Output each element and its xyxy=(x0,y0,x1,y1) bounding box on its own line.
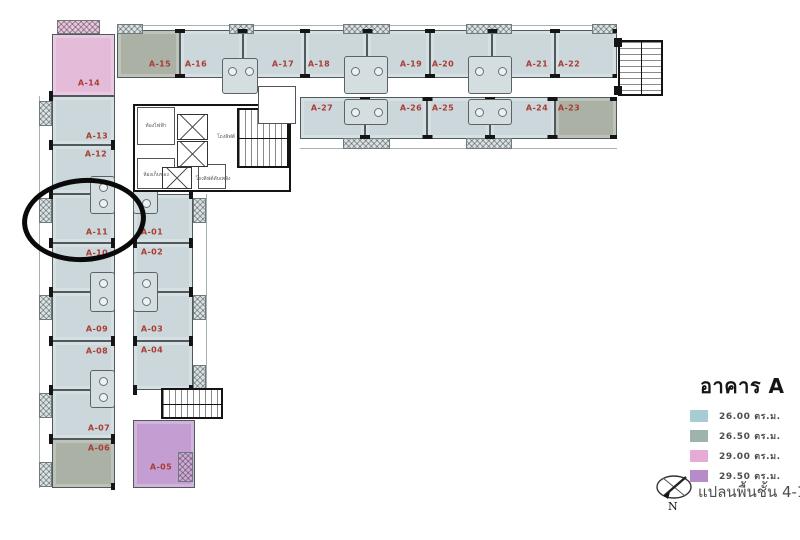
bathroom-pod xyxy=(133,272,158,312)
unit-a-15 xyxy=(117,30,180,78)
railing-line xyxy=(39,96,40,488)
unit-label-a-20: A-20 xyxy=(432,60,454,69)
unit-label-a-15: A-15 xyxy=(149,60,171,69)
unit-label-a-02: A-02 xyxy=(141,248,163,257)
balcony-hatch xyxy=(193,198,206,223)
unit-label-a-26: A-26 xyxy=(400,104,422,113)
bathroom-pod xyxy=(344,56,388,94)
core-room-label: โถงลิฟต์ดับเพลิง xyxy=(196,177,231,183)
legend-swatch xyxy=(690,410,708,422)
bathroom-pod xyxy=(90,370,115,408)
unit-label-a-23: A-23 xyxy=(558,104,580,113)
balcony-hatch xyxy=(343,138,390,149)
legend-rows: 26.00 ตร.ม.26.50 ตร.ม.29.00 ตร.ม.29.50 ต… xyxy=(690,409,785,483)
bathroom-pod xyxy=(468,56,512,94)
window-dashes xyxy=(175,29,617,33)
railing-line xyxy=(206,194,207,390)
compass-icon: N xyxy=(653,472,695,520)
elevator-shaft xyxy=(177,114,208,140)
legend-title: อาคาร A xyxy=(700,370,785,402)
legend-label: 26.00 ตร.ม. xyxy=(719,409,781,423)
elevator-shaft xyxy=(177,141,208,167)
units-layer: A-15A-16A-17A-18A-19A-20A-21A-22A-27A-26… xyxy=(0,0,800,540)
unit-a-22 xyxy=(555,30,617,78)
legend-label: 29.00 ตร.ม. xyxy=(719,449,781,463)
unit-label-a-03: A-03 xyxy=(141,325,163,334)
legend-item-26.00: 26.00 ตร.ม. xyxy=(690,409,785,423)
balcony-hatch xyxy=(178,452,193,482)
floor-plan-diagram: A-15A-16A-17A-18A-19A-20A-21A-22A-27A-26… xyxy=(0,0,800,540)
core-room-label: ห้องไฟฟ้า xyxy=(145,124,166,130)
legend-item-29.00: 29.00 ตร.ม. xyxy=(690,449,785,463)
unit-label-a-05: A-05 xyxy=(150,463,172,472)
bathroom-pod xyxy=(344,99,388,125)
unit-label-a-24: A-24 xyxy=(526,104,548,113)
unit-label-a-21: A-21 xyxy=(526,60,548,69)
balcony-hatch xyxy=(466,138,512,149)
unit-label-a-18: A-18 xyxy=(308,60,330,69)
balcony-hatch xyxy=(117,24,143,34)
window-dashes xyxy=(360,135,617,139)
legend: อาคาร A 26.00 ตร.ม.26.50 ตร.ม.29.00 ตร.ม… xyxy=(690,370,785,489)
east-stairwell xyxy=(618,40,663,96)
balcony-hatch xyxy=(193,295,206,320)
unit-label-a-22: A-22 xyxy=(558,60,580,69)
stair-door-block xyxy=(614,86,622,95)
balcony-hatch xyxy=(193,365,206,390)
legend-label: 26.50 ตร.ม. xyxy=(719,429,781,443)
unit-label-a-13: A-13 xyxy=(86,132,108,141)
compass-n-glyph: N xyxy=(668,500,678,513)
junction-room xyxy=(258,86,296,124)
unit-label-a-16: A-16 xyxy=(185,60,207,69)
unit-label-a-08: A-08 xyxy=(86,347,108,356)
window-dashes xyxy=(189,189,193,391)
bathroom-pod xyxy=(468,99,512,125)
unit-label-a-19: A-19 xyxy=(400,60,422,69)
core-room-label: ห้องเก็บของ xyxy=(143,173,169,179)
balcony-hatch xyxy=(39,462,52,487)
unit-label-a-12: A-12 xyxy=(85,150,107,159)
bathroom-pod xyxy=(222,58,258,94)
unit-label-a-07: A-07 xyxy=(88,424,110,433)
unit-label-a-27: A-27 xyxy=(311,104,333,113)
stair-door-block xyxy=(614,38,622,47)
unit-label-a-09: A-09 xyxy=(86,325,108,334)
legend-swatch xyxy=(690,450,708,462)
legend-item-26.50: 26.50 ตร.ม. xyxy=(690,429,785,443)
unit-label-a-25: A-25 xyxy=(432,104,454,113)
balcony-hatch xyxy=(57,20,100,34)
unit-label-a-06: A-06 xyxy=(88,444,110,453)
south-stairwell xyxy=(161,388,223,419)
plan-caption: แปลนพื้นชั้น 4-18 xyxy=(698,480,800,504)
unit-label-a-04: A-04 xyxy=(141,346,163,355)
unit-label-a-14: A-14 xyxy=(78,79,100,88)
core-room-label: โถงลิฟต์ xyxy=(217,135,235,141)
unit-label-a-17: A-17 xyxy=(272,60,294,69)
legend-swatch xyxy=(690,430,708,442)
window-dashes xyxy=(49,91,53,451)
bathroom-pod xyxy=(90,272,115,312)
unit-label-a-01: A-01 xyxy=(141,228,163,237)
